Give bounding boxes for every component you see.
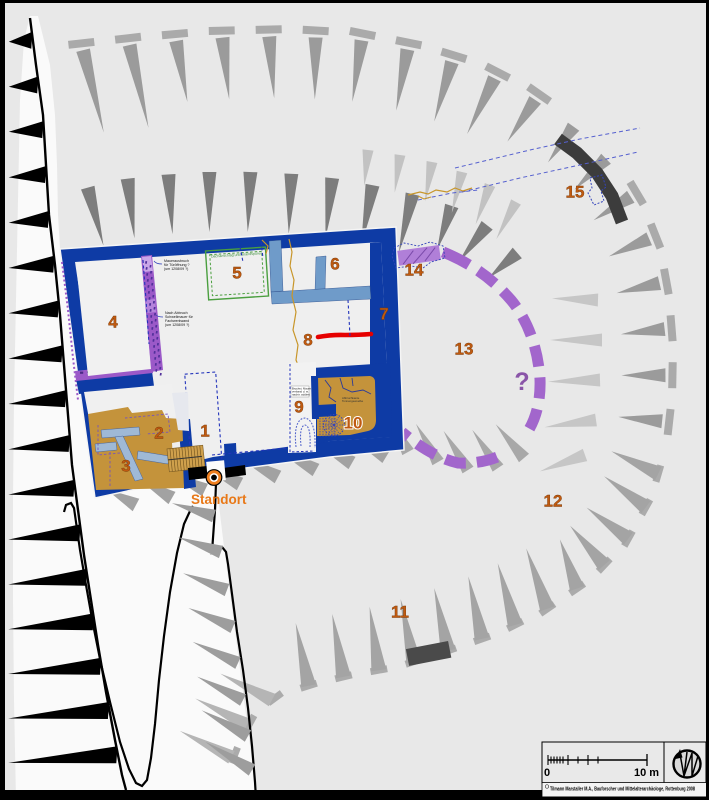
svg-text:nachtr. addiert: nachtr. addiert — [292, 393, 310, 397]
svg-text:Standort: Standort — [191, 492, 247, 507]
svg-text:10: 10 — [344, 414, 363, 433]
svg-text:0: 0 — [544, 767, 550, 779]
svg-text:2: 2 — [154, 424, 163, 443]
svg-text:15: 15 — [566, 183, 585, 202]
svg-text:Tilmann Marstaller M.A., Baufo: Tilmann Marstaller M.A., Bauforscher und… — [550, 787, 695, 793]
svg-text:13: 13 — [455, 340, 474, 359]
svg-text:Tonnengewoelbe: Tonnengewoelbe — [342, 399, 364, 403]
svg-text:7: 7 — [379, 305, 388, 324]
svg-text:?: ? — [514, 368, 529, 396]
svg-text:10 m: 10 m — [634, 767, 659, 779]
svg-text:3: 3 — [121, 457, 130, 476]
svg-text:8: 8 — [303, 331, 312, 350]
svg-text:12: 12 — [544, 492, 563, 511]
svg-text:14: 14 — [405, 261, 424, 280]
svg-text:(um 1208/09 ?): (um 1208/09 ?) — [165, 323, 189, 327]
svg-text:6: 6 — [330, 255, 339, 274]
svg-text:4: 4 — [108, 313, 118, 332]
svg-text:5: 5 — [232, 264, 241, 283]
svg-text:9: 9 — [294, 398, 303, 417]
svg-text:(um 1208/09 ?): (um 1208/09 ?) — [164, 267, 188, 271]
svg-text:1: 1 — [200, 422, 209, 441]
svg-text:11: 11 — [391, 603, 409, 622]
